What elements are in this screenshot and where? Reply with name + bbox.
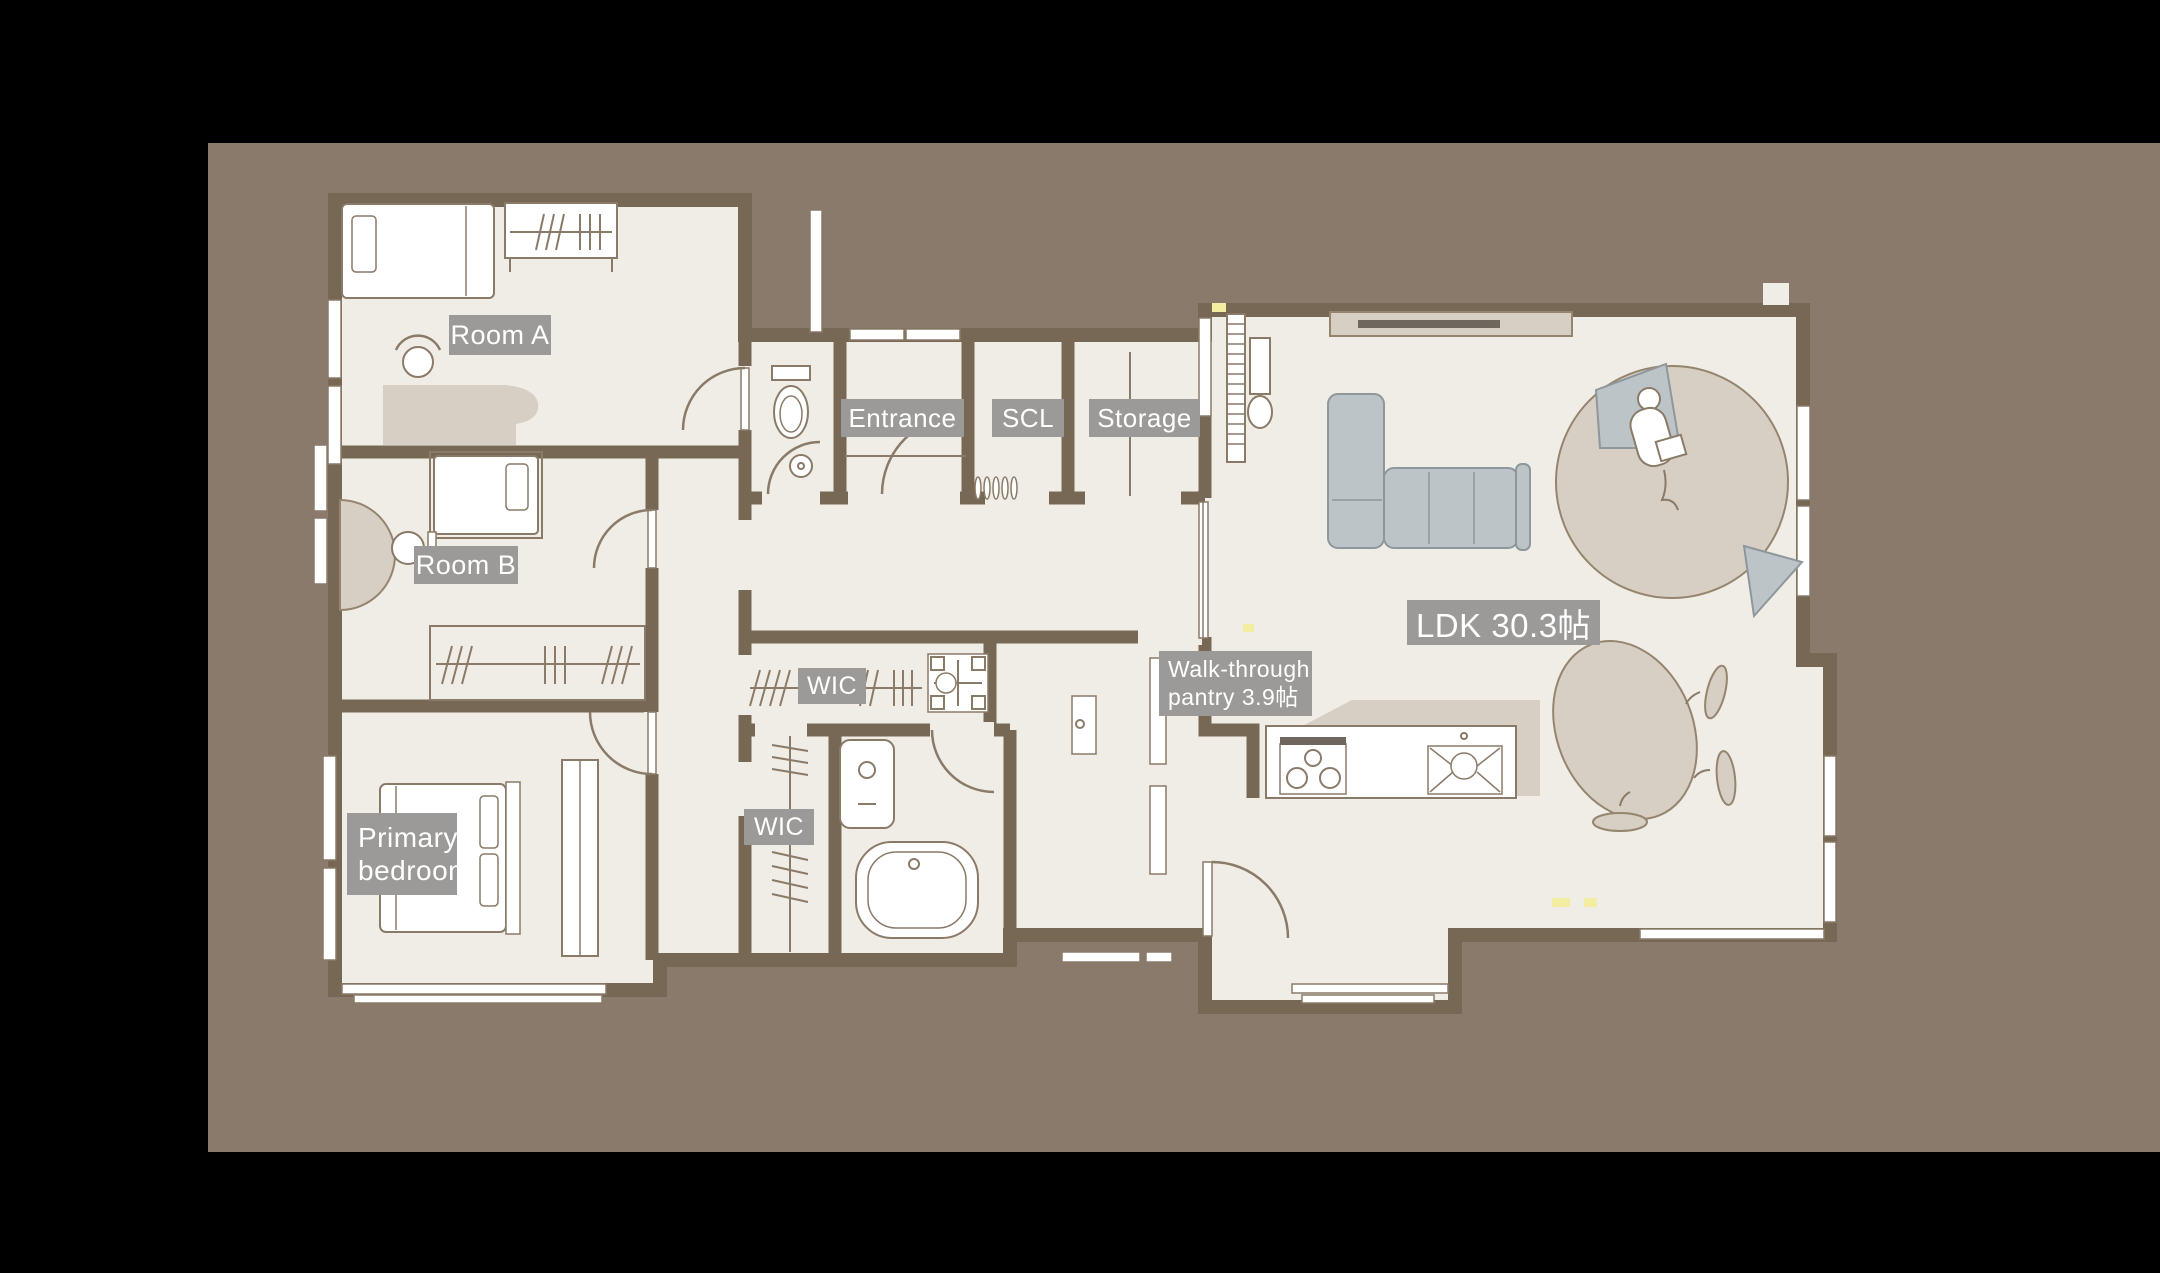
toilet-tank <box>772 366 810 380</box>
washer-pan <box>928 654 988 712</box>
window <box>314 445 327 511</box>
label-wic-upper: WIC <box>798 668 866 704</box>
pillow <box>480 854 498 906</box>
window <box>1062 952 1140 962</box>
window <box>1302 995 1434 1003</box>
label-storage: Storage <box>1089 399 1200 437</box>
label-entrance: Entrance <box>841 399 964 437</box>
armrest <box>1516 464 1530 550</box>
window <box>1797 506 1810 596</box>
bathtub <box>856 842 978 938</box>
label-primary-bedroom: Primary bedroom <box>347 813 457 895</box>
window <box>1824 756 1836 836</box>
floorplan-drawing <box>0 0 2160 1273</box>
single-bed-b <box>430 452 542 538</box>
sofa-seat <box>1384 468 1518 548</box>
window <box>328 300 341 378</box>
room-b-door <box>648 510 656 568</box>
window <box>1146 952 1172 962</box>
pillow <box>506 464 528 510</box>
front-door <box>906 329 960 340</box>
duct <box>810 210 822 332</box>
primary-bedroom-door <box>648 712 656 774</box>
tv <box>1358 320 1500 328</box>
front-door <box>850 329 904 340</box>
plan-outline <box>335 200 1830 1007</box>
window <box>1199 318 1211 416</box>
faucet <box>1451 753 1477 779</box>
chaise <box>1328 394 1384 548</box>
piano-bench <box>1250 338 1270 394</box>
pillow <box>352 216 376 272</box>
window <box>1292 984 1448 993</box>
label-scl: SCL <box>992 399 1064 437</box>
vent <box>1763 283 1789 305</box>
window <box>1797 406 1810 500</box>
label-pantry: Walk-through pantry 3.9帖 <box>1159 651 1312 716</box>
stool <box>1248 396 1272 428</box>
window <box>328 386 341 464</box>
label-ldk: LDK 30.3帖 <box>1407 600 1600 645</box>
window <box>1640 929 1824 939</box>
window <box>323 756 336 860</box>
window <box>314 518 327 584</box>
headboard <box>506 782 520 934</box>
window <box>354 995 602 1003</box>
wash-basin <box>840 740 894 828</box>
label-room-b: Room B <box>414 546 518 584</box>
floorplan-image: Room A Room B Entrance SCL Storage LDK 3… <box>0 0 2160 1273</box>
ldk-side-door <box>1203 862 1212 936</box>
room-a-door <box>741 368 749 430</box>
pantry-shelf <box>1150 786 1166 874</box>
tv-board <box>1330 312 1572 336</box>
window <box>323 868 336 960</box>
label-room-a: Room A <box>449 315 551 355</box>
dining-chair <box>1593 813 1647 831</box>
window <box>342 984 606 994</box>
cooktop <box>1280 737 1346 794</box>
pillow <box>480 796 498 848</box>
person-head <box>1638 388 1660 410</box>
desk-chair <box>403 347 433 377</box>
toilet-sink <box>790 455 812 477</box>
single-bed-a <box>342 204 494 298</box>
label-wic-lower: WIC <box>744 809 814 845</box>
window <box>1824 842 1836 922</box>
